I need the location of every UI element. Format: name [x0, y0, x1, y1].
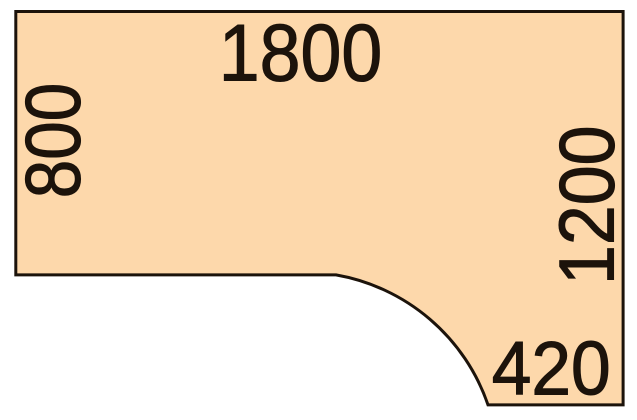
svg-text:1200: 1200 [543, 126, 631, 286]
svg-text:1800: 1800 [219, 9, 383, 99]
svg-text:800: 800 [8, 83, 96, 199]
svg-text:420: 420 [492, 327, 611, 412]
